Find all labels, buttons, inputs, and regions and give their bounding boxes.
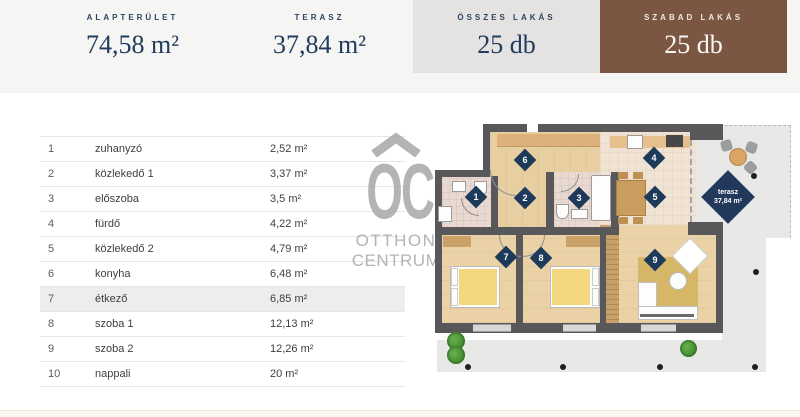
- card-alapterulet: ALAPTERÜLET 74,58 m²: [39, 0, 226, 73]
- wall: [600, 235, 606, 323]
- wardrobe: [443, 236, 471, 247]
- bed-mattress: [552, 269, 590, 305]
- shower-sink: [452, 181, 466, 192]
- coffee-table: [669, 272, 687, 290]
- kitchen-sink: [627, 135, 643, 149]
- header-strip: ALAPTERÜLET 74,58 m² TERASZ 37,84 m² ÖSS…: [0, 0, 800, 93]
- wall: [483, 124, 490, 176]
- pillow: [592, 268, 599, 286]
- stove: [666, 135, 683, 147]
- card-label: TERASZ: [226, 13, 413, 22]
- room-marker-number: 8: [538, 253, 543, 263]
- room-marker-number: 6: [522, 155, 527, 165]
- card-value: 25 db: [600, 30, 787, 60]
- stat-cards: ALAPTERÜLET 74,58 m² TERASZ 37,84 m² ÖSS…: [39, 0, 787, 73]
- room-marker-number: 7: [503, 252, 508, 262]
- dining-chair: [618, 217, 628, 224]
- dining-chair: [618, 172, 628, 179]
- room-name: fürdő: [95, 218, 270, 230]
- logo-monogram: OC: [366, 157, 426, 228]
- wall: [435, 170, 490, 177]
- light-dot: [560, 364, 566, 370]
- wall: [546, 172, 554, 235]
- wall: [483, 124, 723, 132]
- room-marker-number: 4: [651, 153, 656, 163]
- room-marker-number: 1: [473, 192, 478, 202]
- sofa: [638, 306, 698, 320]
- room-area: 20 m²: [270, 368, 390, 380]
- window: [641, 324, 676, 332]
- card-terasz: TERASZ 37,84 m²: [226, 0, 413, 73]
- room-name: étkező: [95, 293, 270, 305]
- room-marker-1: 1: [467, 188, 485, 206]
- card-label: SZABAD LAKÁS: [600, 13, 787, 22]
- row-number: 1: [40, 143, 95, 155]
- wall: [435, 235, 442, 333]
- row-number: 2: [40, 168, 95, 180]
- room-marker-7: 7: [497, 248, 515, 266]
- light-dot: [657, 364, 663, 370]
- row-number: 5: [40, 243, 95, 255]
- room-marker-9: 9: [646, 251, 664, 269]
- room-marker-8: 8: [532, 249, 550, 267]
- pillow: [451, 268, 458, 286]
- property-page: ALAPTERÜLET 74,58 m² TERASZ 37,84 m² ÖSS…: [0, 0, 800, 417]
- room-marker-number: 9: [652, 255, 657, 265]
- toilet: [556, 204, 569, 219]
- otthon-centrum-watermark: OC OTTHON CENTRUM: [348, 133, 444, 283]
- dining-table: [616, 180, 646, 216]
- room-name: előszoba: [95, 193, 270, 205]
- bush: [680, 340, 697, 357]
- bathroom-sink: [571, 209, 588, 219]
- bush: [447, 346, 465, 364]
- room-marker-3: 3: [570, 189, 588, 207]
- room-area: 12,13 m²: [270, 318, 390, 330]
- card-szabad-lakas: SZABAD LAKÁS 25 db: [600, 0, 787, 73]
- floor-plan-image: terasz 37,84 m² 123456789: [433, 110, 797, 374]
- wall: [435, 227, 618, 235]
- card-value: 74,58 m²: [39, 30, 226, 60]
- bathtub: [591, 175, 611, 221]
- room-marker-4: 4: [645, 149, 663, 167]
- room-name: zuhanyzó: [95, 143, 270, 155]
- row-number: 10: [40, 368, 95, 380]
- room-area: 6,85 m²: [270, 293, 390, 305]
- room-name: szoba 1: [95, 318, 270, 330]
- dining-chair: [633, 172, 643, 179]
- card-label: ALAPTERÜLET: [39, 13, 226, 22]
- wall-window-notch: [527, 124, 538, 132]
- terrace-label-area: 37,84 m²: [714, 197, 742, 206]
- room-marker-2: 2: [516, 189, 534, 207]
- wall: [688, 222, 723, 235]
- row-number: 8: [40, 318, 95, 330]
- room-marker-6: 6: [516, 151, 534, 169]
- light-dot: [752, 364, 758, 370]
- card-label: ÖSSZES LAKÁS: [413, 13, 600, 22]
- wall: [690, 124, 723, 140]
- kitchen-counter: [497, 134, 600, 147]
- light-dot: [465, 364, 471, 370]
- room-marker-number: 2: [522, 193, 527, 203]
- terrace-label-diamond: terasz 37,84 m²: [705, 174, 751, 220]
- room-marker-number: 3: [576, 193, 581, 203]
- terrace-right: [722, 228, 766, 340]
- row-number: 4: [40, 218, 95, 230]
- light-dot: [753, 269, 759, 275]
- room-area: 12,26 m²: [270, 343, 390, 355]
- page-bottom-strip: [0, 410, 800, 417]
- wardrobe: [566, 236, 600, 247]
- sofa: [638, 282, 657, 309]
- row-number: 7: [40, 293, 95, 305]
- room-marker-number: 5: [652, 192, 657, 202]
- pillow: [451, 288, 458, 306]
- terrace-table: [729, 148, 747, 166]
- room-name: szoba 2: [95, 343, 270, 355]
- card-value: 37,84 m²: [226, 30, 413, 60]
- wall: [716, 222, 723, 333]
- terrace-bottom: [437, 340, 766, 372]
- table-row[interactable]: 8szoba 112,13 m²: [40, 312, 405, 337]
- table-row[interactable]: 9szoba 212,26 m²: [40, 337, 405, 362]
- terrace-glass-door: [690, 140, 692, 222]
- window: [473, 324, 511, 332]
- room-name: közlekedő 1: [95, 168, 270, 180]
- table-row[interactable]: 7étkező6,85 m²: [40, 287, 405, 312]
- row-number: 6: [40, 268, 95, 280]
- shower-tray: [438, 206, 452, 222]
- logo-text-centrum: CENTRUM: [348, 251, 444, 271]
- window: [563, 324, 596, 332]
- room-marker-5: 5: [646, 188, 664, 206]
- table-row[interactable]: 10nappali20 m²: [40, 362, 405, 387]
- row-number: 9: [40, 343, 95, 355]
- tv-bench: [640, 314, 694, 317]
- terrace-label-title: terasz: [718, 188, 738, 197]
- pillow: [592, 288, 599, 306]
- row-number: 3: [40, 193, 95, 205]
- card-osszes-lakas: ÖSSZES LAKÁS 25 db: [413, 0, 600, 73]
- room-name: közlekedő 2: [95, 243, 270, 255]
- card-value: 25 db: [413, 30, 600, 60]
- room-name: nappali: [95, 368, 270, 380]
- room-name: konyha: [95, 268, 270, 280]
- light-dot: [751, 173, 757, 179]
- bed-mattress: [459, 269, 497, 305]
- dining-chair: [633, 217, 643, 224]
